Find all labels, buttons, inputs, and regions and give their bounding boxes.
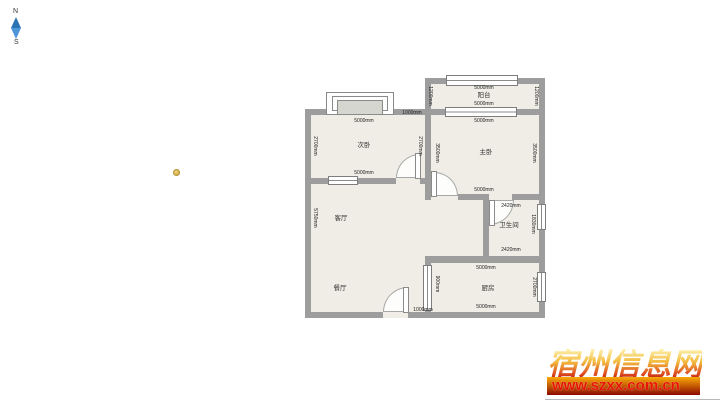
dimension-label: 5000mm [354,118,373,124]
watermark-url: www.szxx.com.cn [552,377,680,395]
dimension-label: 3500mm [434,143,440,162]
dimension-label: 1830mm [530,214,536,233]
dimension-label: 1000mm [402,110,421,116]
compass-north-label: N [13,8,18,15]
second-bedroom-internal-window [328,176,358,185]
dimension-label: 1200mm [533,86,539,105]
room-label-kitchen: 厨房 [482,285,495,292]
compass-needle-south-icon [11,28,21,39]
bathroom-door-leaf [489,200,495,226]
floorplan-screenshot: N S [0,0,720,405]
wall [305,109,311,318]
room-label-bathroom: 卫生间 [499,222,519,229]
compass-needle-north-icon [11,17,21,28]
dimension-label: 5000mm [474,187,493,193]
bathroom-window [537,204,546,230]
master-bedroom-window [445,107,517,117]
watermark-divider-line [545,399,720,400]
wall [425,256,431,265]
dimension-label: 3500mm [531,143,537,162]
room-label-second-bedroom: 次卧 [358,142,371,149]
wall [512,194,545,200]
room-label-balcony: 阳台 [478,92,491,99]
dimension-label: 1000mm [413,307,432,313]
wall [358,178,396,184]
dimension-label: 5000mm [474,118,493,124]
kitchen-window [537,272,546,302]
entry-door-leaf [403,287,409,313]
dimension-label: 2700mm [417,136,423,155]
wall [305,178,328,184]
wall [305,312,383,318]
room-label-living-room: 客厅 [335,215,348,222]
dimension-label: 5000mm [476,265,495,271]
room-label-master-bedroom: 主卧 [480,149,493,156]
kitchen-sliding-door [423,265,432,311]
second-bedroom-door-leaf [415,153,421,179]
dimension-label: 5000mm [354,170,373,176]
dimension-label: 5000mm [474,85,493,91]
gold-dot-marker [173,169,180,176]
master-bedroom-door-leaf [431,171,437,197]
dimension-label: 900mm [434,276,440,293]
dimension-label: 5750mm [312,208,318,227]
dimension-label: 1200mm [427,86,433,105]
dimension-label: 2420mm [501,203,520,209]
dimension-label: 2420mm [501,247,520,253]
dimension-label: 5000mm [476,304,495,310]
compass-south-label: S [14,39,19,46]
dimension-label: 5000mm [474,101,493,107]
dimension-label: 2700mm [312,136,318,155]
dimension-label: 2700mm [531,277,537,296]
room-label-dining-room: 餐厅 [334,285,347,292]
bay-window-sill [337,100,383,115]
